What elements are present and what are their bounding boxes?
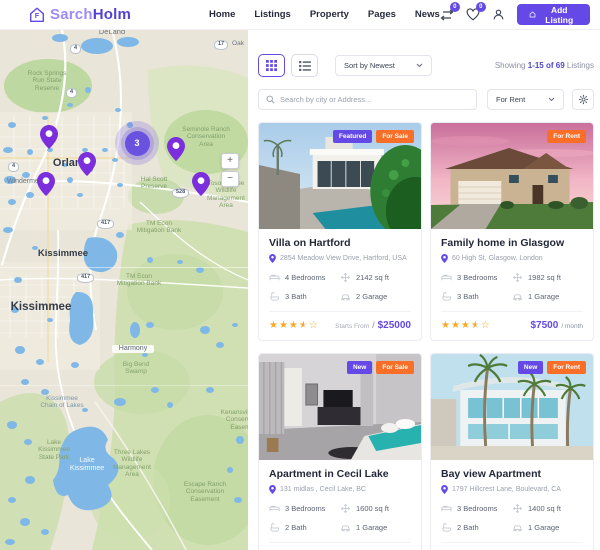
map-zoom-control: + − — [221, 153, 239, 187]
garage-icon — [512, 291, 523, 302]
garage-value: 1 Garage — [528, 292, 559, 301]
garage-icon — [512, 522, 523, 533]
chevron-down-icon — [416, 63, 423, 68]
results-count: Showing 1-15 of 69 Listings — [495, 61, 594, 70]
listing-title[interactable]: Apartment in Cecil Lake — [269, 468, 411, 480]
map-terrain — [0, 30, 248, 550]
bed-icon — [441, 503, 452, 514]
listings-panel: Sort by Newest Showing 1-15 of 69 Listin… — [248, 30, 600, 550]
listing-photo[interactable]: New For Rent — [431, 354, 593, 460]
advanced-filters-button[interactable] — [572, 89, 594, 110]
listing-title[interactable]: Family home in Glasgow — [441, 237, 583, 249]
listing-title[interactable]: Bay view Apartment — [441, 468, 583, 480]
top-navbar: F SarchHolm Home Listings Property Pages… — [0, 0, 600, 30]
road-shield: 4 — [8, 162, 19, 172]
add-listing-home-icon — [529, 10, 536, 19]
garage-value: 1 Garage — [356, 523, 387, 532]
area-value: 2142 sq ft — [356, 273, 389, 282]
favorites-heart-icon[interactable]: 0 — [466, 7, 480, 23]
bath-icon — [441, 291, 452, 302]
badge-for-sale: For Sale — [376, 361, 414, 374]
location-pin-icon — [441, 254, 448, 263]
area-value: 1600 sq ft — [356, 504, 389, 513]
baths-value: 3 Bath — [457, 292, 479, 301]
area-value: 1400 sq ft — [528, 504, 561, 513]
road-shield: 4 — [66, 88, 77, 98]
bed-icon — [269, 503, 280, 514]
badge-featured: Featured — [333, 130, 372, 143]
beds-value: 3 Bedrooms — [457, 273, 497, 282]
sort-dropdown[interactable]: Sort by Newest — [335, 55, 432, 76]
baths-value: 2 Bath — [285, 523, 307, 532]
user-account-icon[interactable] — [492, 7, 505, 23]
search-box — [258, 89, 477, 110]
baths-value: 3 Bath — [285, 292, 307, 301]
area-icon — [340, 503, 351, 514]
listing-card[interactable]: Featured For Sale Villa on Hartford 2854… — [258, 122, 422, 341]
listing-address: 1797 Hillcrest Lane, Boulevard, CA — [452, 486, 561, 493]
nav-news[interactable]: News — [415, 9, 440, 20]
garage-icon — [340, 291, 351, 302]
location-pin-icon — [269, 254, 276, 263]
listing-price: Starts From / $25000 — [335, 320, 411, 331]
bath-icon — [441, 522, 452, 533]
badge-for-sale: For Sale — [376, 130, 414, 143]
listing-address: 60 High St, Glasgow, London — [452, 255, 543, 262]
search-icon — [266, 95, 275, 104]
area-icon — [512, 503, 523, 514]
nav-property[interactable]: Property — [310, 9, 349, 20]
bath-icon — [269, 291, 280, 302]
baths-value: 2 Bath — [457, 523, 479, 532]
road-shield: 528 — [172, 188, 189, 198]
map-zoom-out-button[interactable]: − — [221, 171, 239, 187]
list-view-button[interactable] — [291, 54, 318, 77]
area-icon — [512, 272, 523, 283]
star-rating: ★★★★☆ — [269, 320, 319, 331]
garage-value: 2 Garage — [356, 292, 387, 301]
nav-home[interactable]: Home — [209, 9, 235, 20]
badge-for-rent: For Rent — [547, 130, 586, 143]
status-filter-value: For Rent — [496, 95, 525, 104]
grid-view-icon — [266, 60, 277, 71]
chevron-down-icon — [548, 97, 555, 102]
svg-text:F: F — [35, 11, 40, 20]
map-pin-marker[interactable] — [40, 125, 58, 149]
main-nav: Home Listings Property Pages News — [209, 9, 440, 20]
badge-new: New — [347, 361, 372, 374]
map-canvas[interactable]: DeLand Oak Rock Springs Run State Reserv… — [0, 30, 248, 550]
search-input[interactable] — [280, 95, 469, 104]
listing-address: 131 midlas , Cecil Lake, BC — [280, 486, 366, 493]
road-shield: 417 — [77, 273, 94, 283]
sort-value: Sort by Newest — [344, 61, 395, 70]
map-pin-marker[interactable] — [167, 137, 185, 161]
location-pin-icon — [441, 485, 448, 494]
listing-card[interactable]: New For Sale Apartment in Cecil Lake 131… — [258, 353, 422, 550]
listing-photo[interactable]: New For Sale — [259, 354, 421, 460]
badge-for-rent: For Rent — [547, 361, 586, 374]
beds-value: 4 Bedrooms — [285, 273, 325, 282]
compare-count-badge: 0 — [450, 2, 460, 12]
beds-value: 3 Bedrooms — [285, 504, 325, 513]
map-zoom-in-button[interactable]: + — [221, 153, 239, 169]
gear-icon — [578, 94, 589, 105]
bath-icon — [269, 522, 280, 533]
garage-icon — [340, 522, 351, 533]
map-pin-marker[interactable] — [78, 152, 96, 176]
bed-icon — [269, 272, 280, 283]
nav-pages[interactable]: Pages — [368, 9, 396, 20]
grid-view-button[interactable] — [258, 54, 285, 77]
area-value: 1982 sq ft — [528, 273, 561, 282]
status-filter-dropdown[interactable]: For Rent — [487, 89, 564, 110]
listing-card[interactable]: For Rent Family home in Glasgow 60 High … — [430, 122, 594, 341]
listing-photo[interactable]: Featured For Sale — [259, 123, 421, 229]
cluster-count: 3 — [125, 131, 150, 156]
beds-value: 3 Bedrooms — [457, 504, 497, 513]
listing-card[interactable]: New For Rent Bay view Apartment 1797 Hil… — [430, 353, 594, 550]
listing-price: $7500 / month — [531, 320, 584, 331]
location-pin-icon — [269, 485, 276, 494]
logo-text: SarchHolm — [50, 6, 131, 23]
listings-grid: Featured For Sale Villa on Hartford 2854… — [258, 122, 594, 550]
area-icon — [340, 272, 351, 283]
map-cluster-marker[interactable]: 3 — [115, 121, 159, 165]
listing-title[interactable]: Villa on Hartford — [269, 237, 411, 249]
add-listing-button[interactable]: Add Listing — [517, 4, 590, 25]
road-shield: 4 — [70, 44, 81, 54]
logo[interactable]: F SarchHolm — [28, 6, 131, 24]
road-shield: 17 — [214, 40, 228, 50]
listing-address: 2854 Meadow View Drive, Hartford, USA — [280, 255, 407, 262]
favorites-count-badge: 0 — [476, 2, 486, 12]
road-shield: 417 — [97, 219, 114, 229]
compare-icon[interactable]: 0 — [440, 7, 454, 23]
list-view-icon — [299, 61, 311, 71]
badge-new: New — [518, 361, 543, 374]
bed-icon — [441, 272, 452, 283]
star-rating: ★★★★☆ — [441, 320, 491, 331]
nav-listings[interactable]: Listings — [254, 9, 290, 20]
logo-house-icon: F — [28, 6, 46, 24]
map-pin-marker[interactable] — [192, 172, 210, 196]
listing-photo[interactable]: For Rent — [431, 123, 593, 229]
map-pin-marker[interactable] — [37, 172, 55, 196]
garage-value: 1 Garage — [528, 523, 559, 532]
